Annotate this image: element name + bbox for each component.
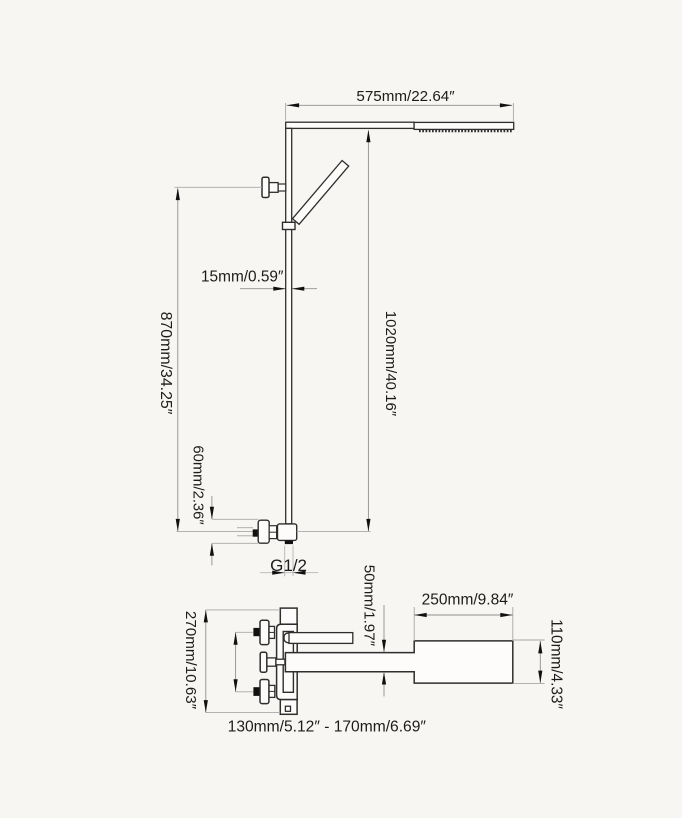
- svg-text:110mm/4.33″: 110mm/4.33″: [548, 619, 565, 709]
- svg-text:870mm/34.25″: 870mm/34.25″: [157, 312, 174, 415]
- svg-text:270mm/10.63″: 270mm/10.63″: [182, 611, 199, 710]
- svg-text:15mm/0.59″: 15mm/0.59″: [201, 269, 284, 286]
- svg-text:130mm/5.12″ - 170mm/6.69″: 130mm/5.12″ - 170mm/6.69″: [228, 719, 427, 736]
- svg-text:250mm/9.84″: 250mm/9.84″: [422, 592, 514, 609]
- svg-text:575mm/22.64″: 575mm/22.64″: [356, 88, 455, 105]
- svg-text:60mm/2.36″: 60mm/2.36″: [190, 445, 206, 524]
- svg-text:G1/2: G1/2: [270, 556, 307, 575]
- svg-text:1020mm/40.16″: 1020mm/40.16″: [382, 311, 399, 417]
- svg-text:50mm/1.97″: 50mm/1.97″: [360, 565, 377, 647]
